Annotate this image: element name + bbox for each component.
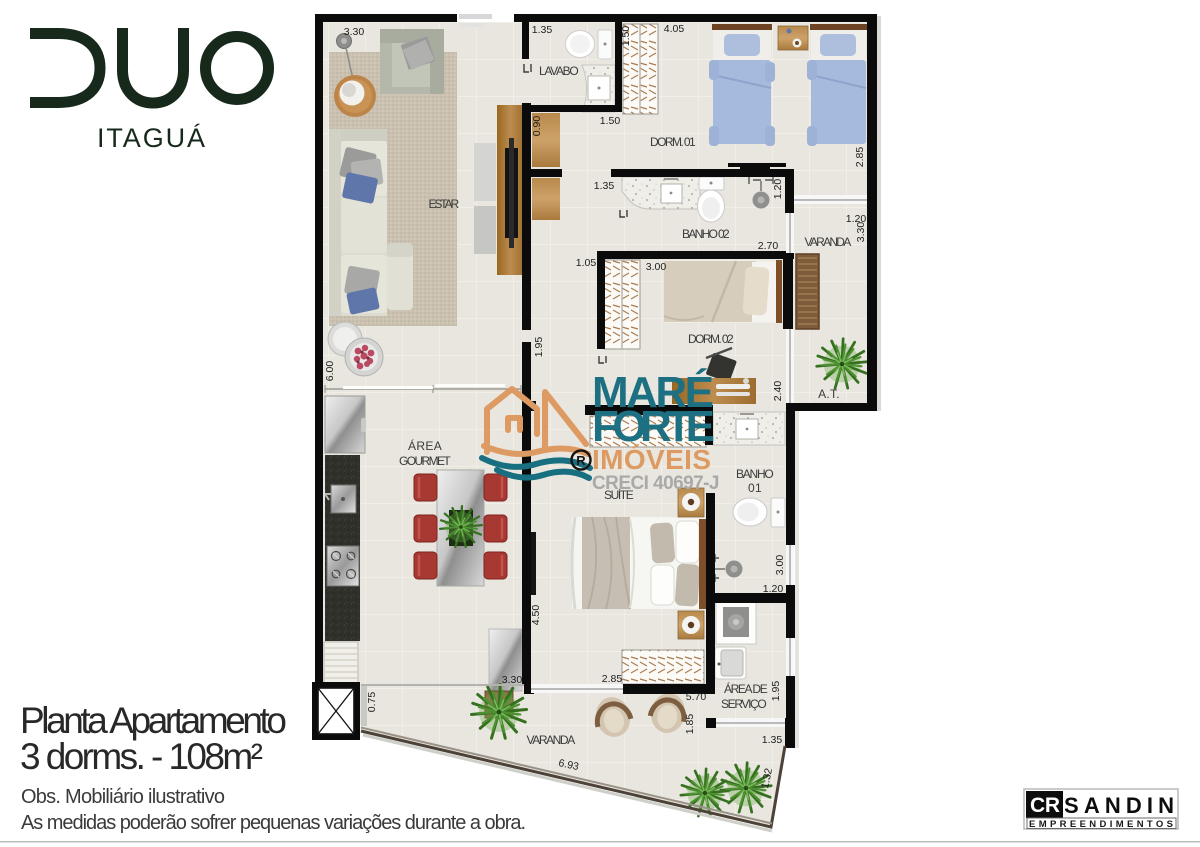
svg-text:IMÓVEIS: IMÓVEIS [592,444,712,475]
svg-text:2.85: 2.85 [854,147,866,168]
svg-text:ESTAR: ESTAR [429,197,460,211]
svg-text:4.50: 4.50 [530,605,542,626]
svg-text:3.30: 3.30 [855,222,867,243]
svg-text:Planta Apartamento: Planta Apartamento [20,700,287,741]
svg-text:0.90: 0.90 [531,116,543,137]
svg-text:ITAGUÁ: ITAGUÁ [97,123,205,153]
svg-text:LAVABO: LAVABO [539,64,579,78]
svg-text:1.35: 1.35 [532,24,553,36]
svg-text:1.20: 1.20 [763,583,784,595]
svg-text:5.70: 5.70 [686,691,707,703]
svg-text:4.05: 4.05 [664,23,685,35]
svg-text:VARANDA: VARANDA [527,733,576,747]
svg-text:DORM. 02: DORM. 02 [688,332,734,346]
svg-text:GOURMET: GOURMET [399,454,451,468]
svg-text:3.00: 3.00 [646,261,667,273]
svg-text:1.50: 1.50 [620,26,632,47]
svg-text:ÁREA DE: ÁREA DE [724,681,768,696]
svg-text:R: R [576,453,586,468]
svg-text:1.35: 1.35 [594,180,615,192]
svg-text:3.00: 3.00 [774,555,786,576]
svg-text:1.35: 1.35 [762,734,783,746]
svg-text:ÁREA: ÁREA [408,438,442,453]
svg-text:1.20: 1.20 [772,179,784,200]
svg-text:BANHO 02: BANHO 02 [682,227,730,241]
svg-text:2.40: 2.40 [772,381,784,402]
svg-text:2.70: 2.70 [758,240,779,252]
svg-text:3.30: 3.30 [344,26,365,38]
svg-text:0.75: 0.75 [366,692,378,713]
svg-text:1.50: 1.50 [600,115,621,127]
svg-text:1.95: 1.95 [770,681,782,702]
svg-text:DORM. 01: DORM. 01 [650,135,696,149]
svg-text:EMPREENDIMENTOS: EMPREENDIMENTOS [1029,819,1173,830]
svg-text:3.30: 3.30 [502,674,523,686]
svg-text:01: 01 [748,481,762,495]
svg-text:6.00: 6.00 [324,361,336,382]
svg-text:As medidas poderão sofrer pequ: As medidas poderão sofrer pequenas varia… [21,812,526,834]
svg-text:SERVIÇO: SERVIÇO [721,697,767,711]
svg-text:VARANDA: VARANDA [805,235,852,249]
svg-text:1.05: 1.05 [576,257,597,269]
svg-text:Obs. Mobiliário ilustrativo: Obs. Mobiliário ilustrativo [21,786,225,808]
svg-text:3 dorms. - 108m²: 3 dorms. - 108m² [20,736,263,777]
svg-text:CRECI 40697-J: CRECI 40697-J [592,473,720,494]
svg-text:2.85: 2.85 [602,673,623,685]
svg-text:A.T.: A.T. [818,387,840,401]
svg-text:1.85: 1.85 [684,714,696,735]
svg-text:BANHO: BANHO [736,467,774,481]
svg-text:CR: CR [1030,794,1060,817]
svg-text:1.95: 1.95 [533,337,545,358]
